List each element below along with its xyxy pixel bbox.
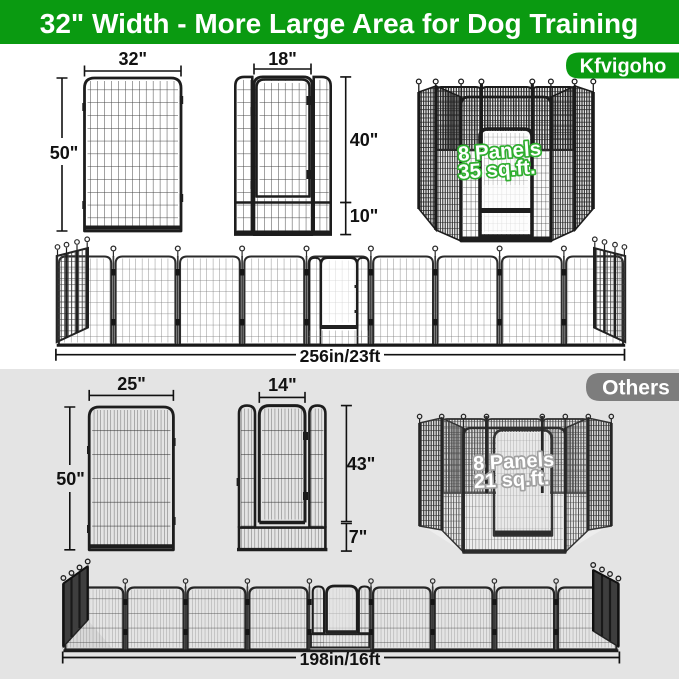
svg-text:40": 40" [350,130,379,150]
svg-text:7": 7" [349,527,368,547]
svg-text:25": 25" [117,374,146,394]
svg-text:32": 32" [118,49,147,69]
svg-text:32" Width - More Large Area fo: 32" Width - More Large Area for Dog Trai… [40,8,639,39]
svg-text:50": 50" [50,143,79,163]
svg-text:18": 18" [268,49,297,69]
svg-text:Others: Others [602,377,670,400]
svg-text:Kfvigoho: Kfvigoho [580,56,667,78]
svg-text:256in/23ft: 256in/23ft [300,346,381,366]
svg-text:50": 50" [56,469,85,489]
svg-text:10": 10" [350,206,379,226]
svg-text:198in/16ft: 198in/16ft [300,649,381,669]
svg-text:21 sq.ft.: 21 sq.ft. [473,467,550,493]
svg-text:43": 43" [347,454,376,474]
svg-text:14": 14" [268,375,297,395]
